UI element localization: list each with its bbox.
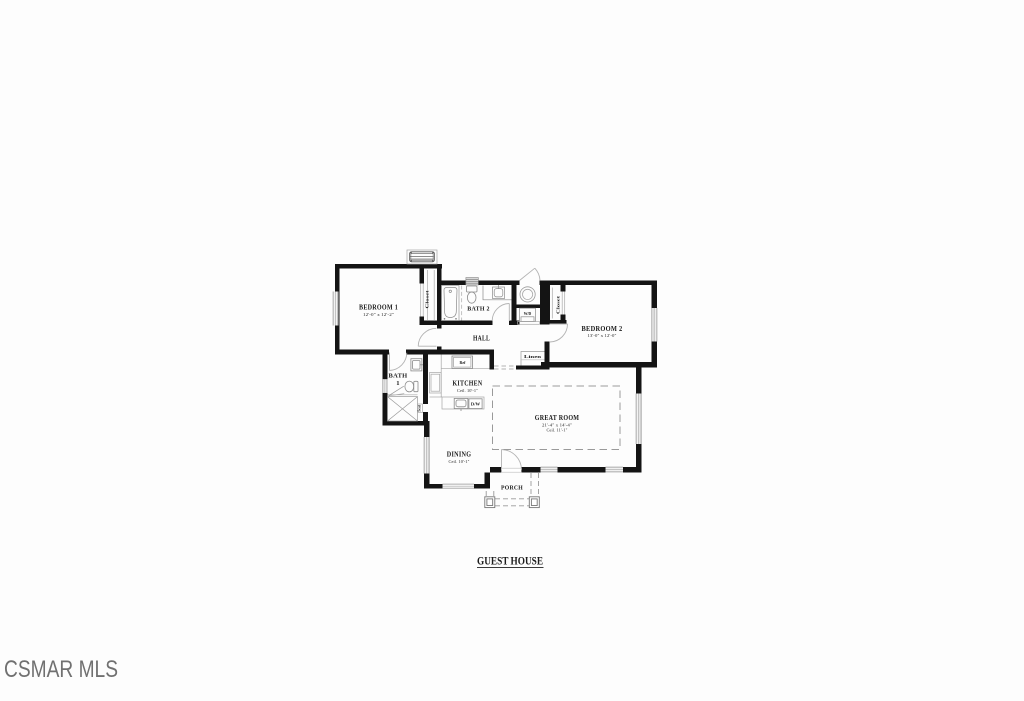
- svg-text:Ceil. 10'-1": Ceil. 10'-1": [449, 459, 470, 464]
- svg-text:BEDROOM 2: BEDROOM 2: [582, 325, 623, 333]
- svg-text:HALL: HALL: [473, 335, 490, 343]
- svg-text:D/W: D/W: [471, 402, 481, 407]
- svg-text:BEDROOM 1: BEDROOM 1: [359, 304, 398, 312]
- svg-text:KITCHEN: KITCHEN: [453, 380, 483, 388]
- svg-text:GREAT ROOM: GREAT ROOM: [535, 413, 580, 422]
- svg-text:Closet: Closet: [556, 295, 561, 314]
- svg-text:Seat: Seat: [417, 404, 421, 411]
- svg-text:CSMAR MLS: CSMAR MLS: [4, 656, 118, 683]
- svg-text:13'-0" x 12'-0": 13'-0" x 12'-0": [588, 333, 617, 338]
- svg-text:Linen: Linen: [524, 354, 542, 359]
- svg-text:Ceil. 10'-1": Ceil. 10'-1": [457, 388, 478, 393]
- svg-text:W/D: W/D: [524, 312, 532, 316]
- svg-text:Closet: Closet: [425, 290, 430, 309]
- svg-text:GUEST HOUSE: GUEST HOUSE: [477, 556, 543, 568]
- svg-text:BATH: BATH: [389, 372, 409, 379]
- svg-text:12'-0" x 12'-2": 12'-0" x 12'-2": [363, 312, 394, 317]
- svg-text:Ref: Ref: [460, 360, 467, 365]
- svg-text:BATH 2: BATH 2: [467, 305, 490, 312]
- svg-text:DINING: DINING: [447, 451, 472, 459]
- svg-text:1: 1: [396, 380, 400, 387]
- svg-text:Ceil. 11'-1": Ceil. 11'-1": [547, 427, 568, 432]
- svg-text:PORCH: PORCH: [501, 484, 523, 491]
